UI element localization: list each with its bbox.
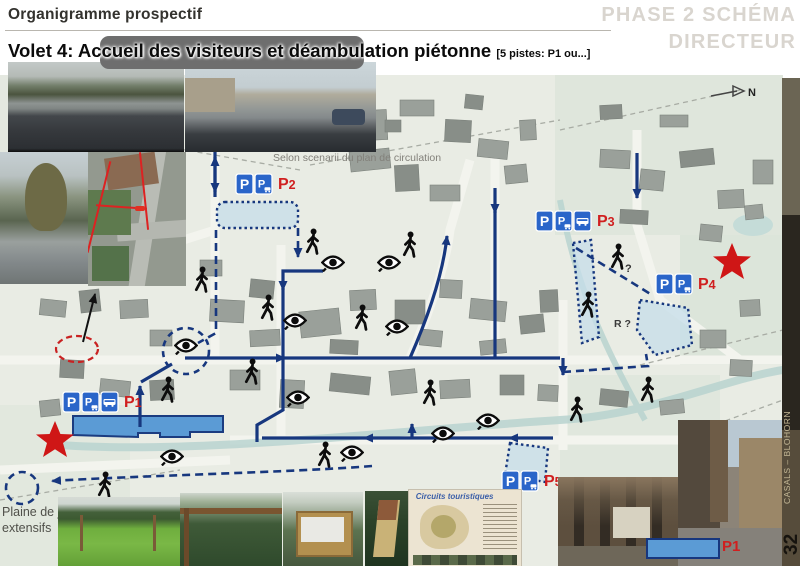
building-footprint <box>699 224 723 242</box>
caravan-glyph <box>92 405 98 408</box>
building-footprint <box>440 279 463 298</box>
question-mark-label: ? <box>625 263 632 275</box>
legend-parking-area-swatch <box>646 538 720 559</box>
parked-car-shape <box>332 109 364 125</box>
building-footprint <box>504 164 528 184</box>
svg-text:P: P <box>258 179 265 191</box>
parking-sign-p: P <box>502 471 519 491</box>
caravan-glyph <box>565 224 571 227</box>
building-footprint <box>250 329 281 347</box>
aerial-roof <box>104 152 159 190</box>
board-panel <box>301 517 344 542</box>
building-footprint <box>599 389 629 408</box>
parking-sign-bus <box>574 211 591 231</box>
subtitle-text: Volet 4: Accueil des visiteurs et déambu… <box>8 40 491 61</box>
building-footprint <box>753 160 773 184</box>
parking-label-p4: P4 <box>698 276 716 293</box>
caravan-glyph <box>685 287 691 290</box>
building-footprint <box>538 384 559 401</box>
arcade-opening <box>613 507 650 537</box>
building-footprint <box>600 104 623 119</box>
building-footprint <box>79 289 101 313</box>
title-divider <box>5 30 611 31</box>
wood-beam <box>180 508 282 515</box>
svg-text:P: P <box>67 394 76 410</box>
building-footprint <box>39 299 67 318</box>
building-footprint <box>730 359 753 376</box>
tree-shape <box>25 163 67 232</box>
photo-aerial-crossroads <box>88 152 186 286</box>
sidebar-segment-top <box>782 78 800 215</box>
building-footprint <box>477 138 509 159</box>
svg-text:P: P <box>660 276 669 292</box>
building-footprint <box>329 373 371 395</box>
photo-tourist-map-poster: Circuits touristiques <box>408 489 522 566</box>
svg-text:P: P <box>85 397 92 409</box>
goal-post <box>80 515 83 551</box>
aerial-garden <box>92 246 129 281</box>
building-footprint <box>539 290 558 313</box>
building-footprint <box>519 314 545 334</box>
svg-text:P: P <box>506 473 515 489</box>
page-title: Organigramme prospectif <box>8 6 202 24</box>
building-footprint <box>464 94 483 110</box>
building-footprint <box>469 298 507 322</box>
house-shape <box>185 78 235 112</box>
building-footprint <box>444 119 471 142</box>
photo-information-board <box>283 492 363 566</box>
building-footprint <box>679 148 714 167</box>
building-footprint <box>430 185 460 201</box>
lectern-top <box>377 500 398 520</box>
building-footprint <box>385 120 401 132</box>
parking-sign-bus <box>101 392 118 412</box>
poster-photo-strip <box>413 555 516 566</box>
subtitle: Volet 4: Accueil des visiteurs et déambu… <box>8 40 590 62</box>
svg-text:P: P <box>240 176 249 192</box>
parking-group-p3: PPP3 <box>536 211 615 231</box>
parking-group-p5: PPP5 <box>502 471 562 491</box>
parking-sign-p-caravan: P <box>255 174 272 194</box>
building-footprint <box>299 308 341 338</box>
building-footprint <box>419 329 443 347</box>
scenario-note: Selon scenarii du plan de circulation <box>273 152 441 164</box>
alley-tower <box>710 420 729 522</box>
parking-sign-p: P <box>656 274 673 294</box>
building-footprint <box>500 375 524 395</box>
photo-lectern-sign <box>365 491 408 566</box>
building-footprint <box>659 399 684 415</box>
parking-sign-p-caravan: P <box>521 471 538 491</box>
building-footprint <box>744 204 763 220</box>
area-p2 <box>217 202 298 228</box>
building-footprint <box>519 120 536 141</box>
legend-parking-label: P1 <box>722 538 740 555</box>
poster-title: Circuits touristiques <box>416 492 494 501</box>
caravan-glyph <box>265 187 271 190</box>
parking-label-p3: P3 <box>597 213 615 230</box>
photo-playground-field <box>58 497 180 566</box>
parking-sign-p: P <box>236 174 253 194</box>
svg-text:P: P <box>678 279 685 291</box>
building-footprint <box>600 149 631 169</box>
svg-text:P: P <box>524 476 531 488</box>
building-footprint <box>400 100 434 116</box>
svg-text:P: P <box>540 213 549 229</box>
parking-sign-p-caravan: P <box>82 392 99 412</box>
parking-label-p2: P2 <box>278 176 296 193</box>
parking-sign-p: P <box>536 211 553 231</box>
building-footprint <box>389 369 417 396</box>
parking-sign-p: P <box>63 392 80 412</box>
building-footprint <box>660 115 688 127</box>
photo-road-approach-west <box>8 62 184 156</box>
page-number: 32 <box>781 522 800 566</box>
poster-map-shape <box>431 515 456 538</box>
phase-line1: PHASE 2 SCHÉMA <box>520 2 796 29</box>
parking-sign-p-caravan: P <box>675 274 692 294</box>
building-footprint <box>330 339 359 354</box>
building-footprint <box>150 330 172 346</box>
north-label: N <box>748 87 756 99</box>
subtitle-note: [5 pistes: P1 ou...] <box>496 48 590 60</box>
author-credit: CASALS – BLOHORN <box>782 400 800 515</box>
parking-sign-p-caravan: P <box>555 211 572 231</box>
caravan-glyph <box>531 484 537 487</box>
building-footprint <box>700 330 726 348</box>
slide-page: Organigramme prospectif PHASE 2 SCHÉMA D… <box>0 0 800 566</box>
building-footprint <box>39 399 61 417</box>
parking-label-p1: P1 <box>124 394 142 411</box>
photo-wooden-frame <box>180 493 282 566</box>
parking-group-p4: PPP4 <box>656 274 716 294</box>
parking-group-p2: PPP2 <box>236 174 296 194</box>
building-footprint <box>740 299 761 316</box>
sidebar-segment-middle <box>782 215 800 430</box>
wood-post <box>184 508 189 566</box>
poster-text-column <box>483 504 517 550</box>
building-footprint <box>620 209 649 224</box>
parking-group-p1: PPP1 <box>63 392 142 412</box>
playground-label-line2: extensifs <box>2 521 51 535</box>
building-footprint <box>718 189 745 208</box>
photo-street-view-tree <box>0 152 88 284</box>
svg-text:P: P <box>558 216 565 228</box>
photo-road-approach-village <box>185 62 376 152</box>
r-question-label: R ? <box>614 318 631 330</box>
building-footprint <box>440 379 471 399</box>
building-footprint <box>639 169 665 191</box>
building-footprint <box>394 164 419 191</box>
building-footprint <box>120 299 149 318</box>
aerial-red-car <box>135 206 145 211</box>
building-footprint <box>479 339 506 356</box>
goal-post <box>153 515 156 551</box>
